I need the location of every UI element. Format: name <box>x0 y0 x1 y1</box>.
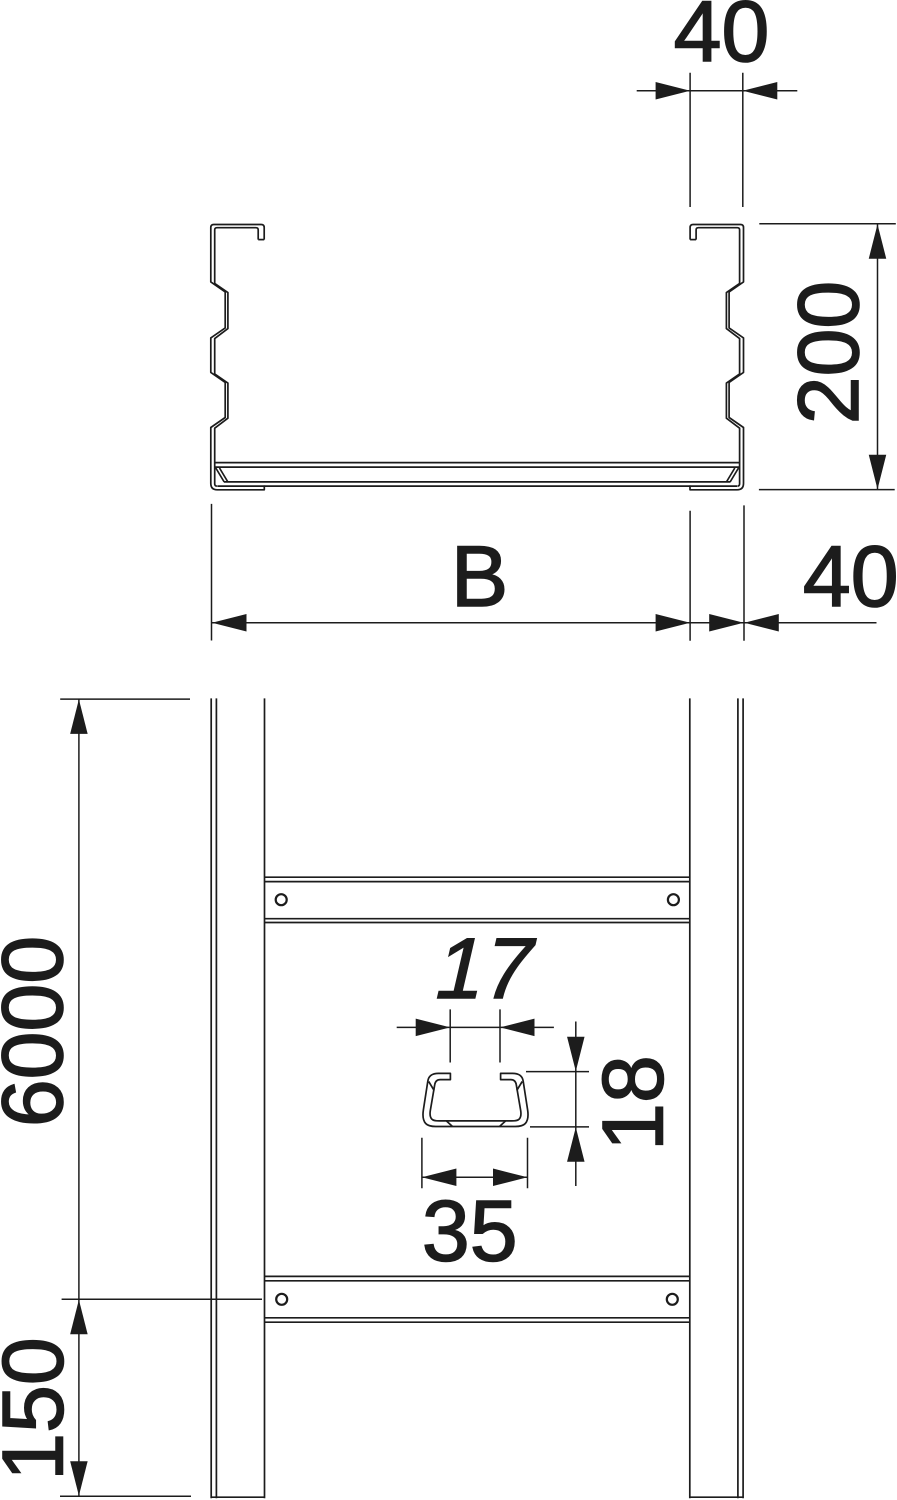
svg-text:40: 40 <box>674 0 770 80</box>
svg-text:40: 40 <box>803 529 897 625</box>
svg-text:35: 35 <box>422 1184 518 1280</box>
svg-text:18: 18 <box>586 1055 682 1151</box>
svg-text:150: 150 <box>0 1337 82 1481</box>
svg-text:6000: 6000 <box>0 936 81 1127</box>
svg-text:200: 200 <box>781 281 877 425</box>
svg-text:B: B <box>451 529 508 625</box>
